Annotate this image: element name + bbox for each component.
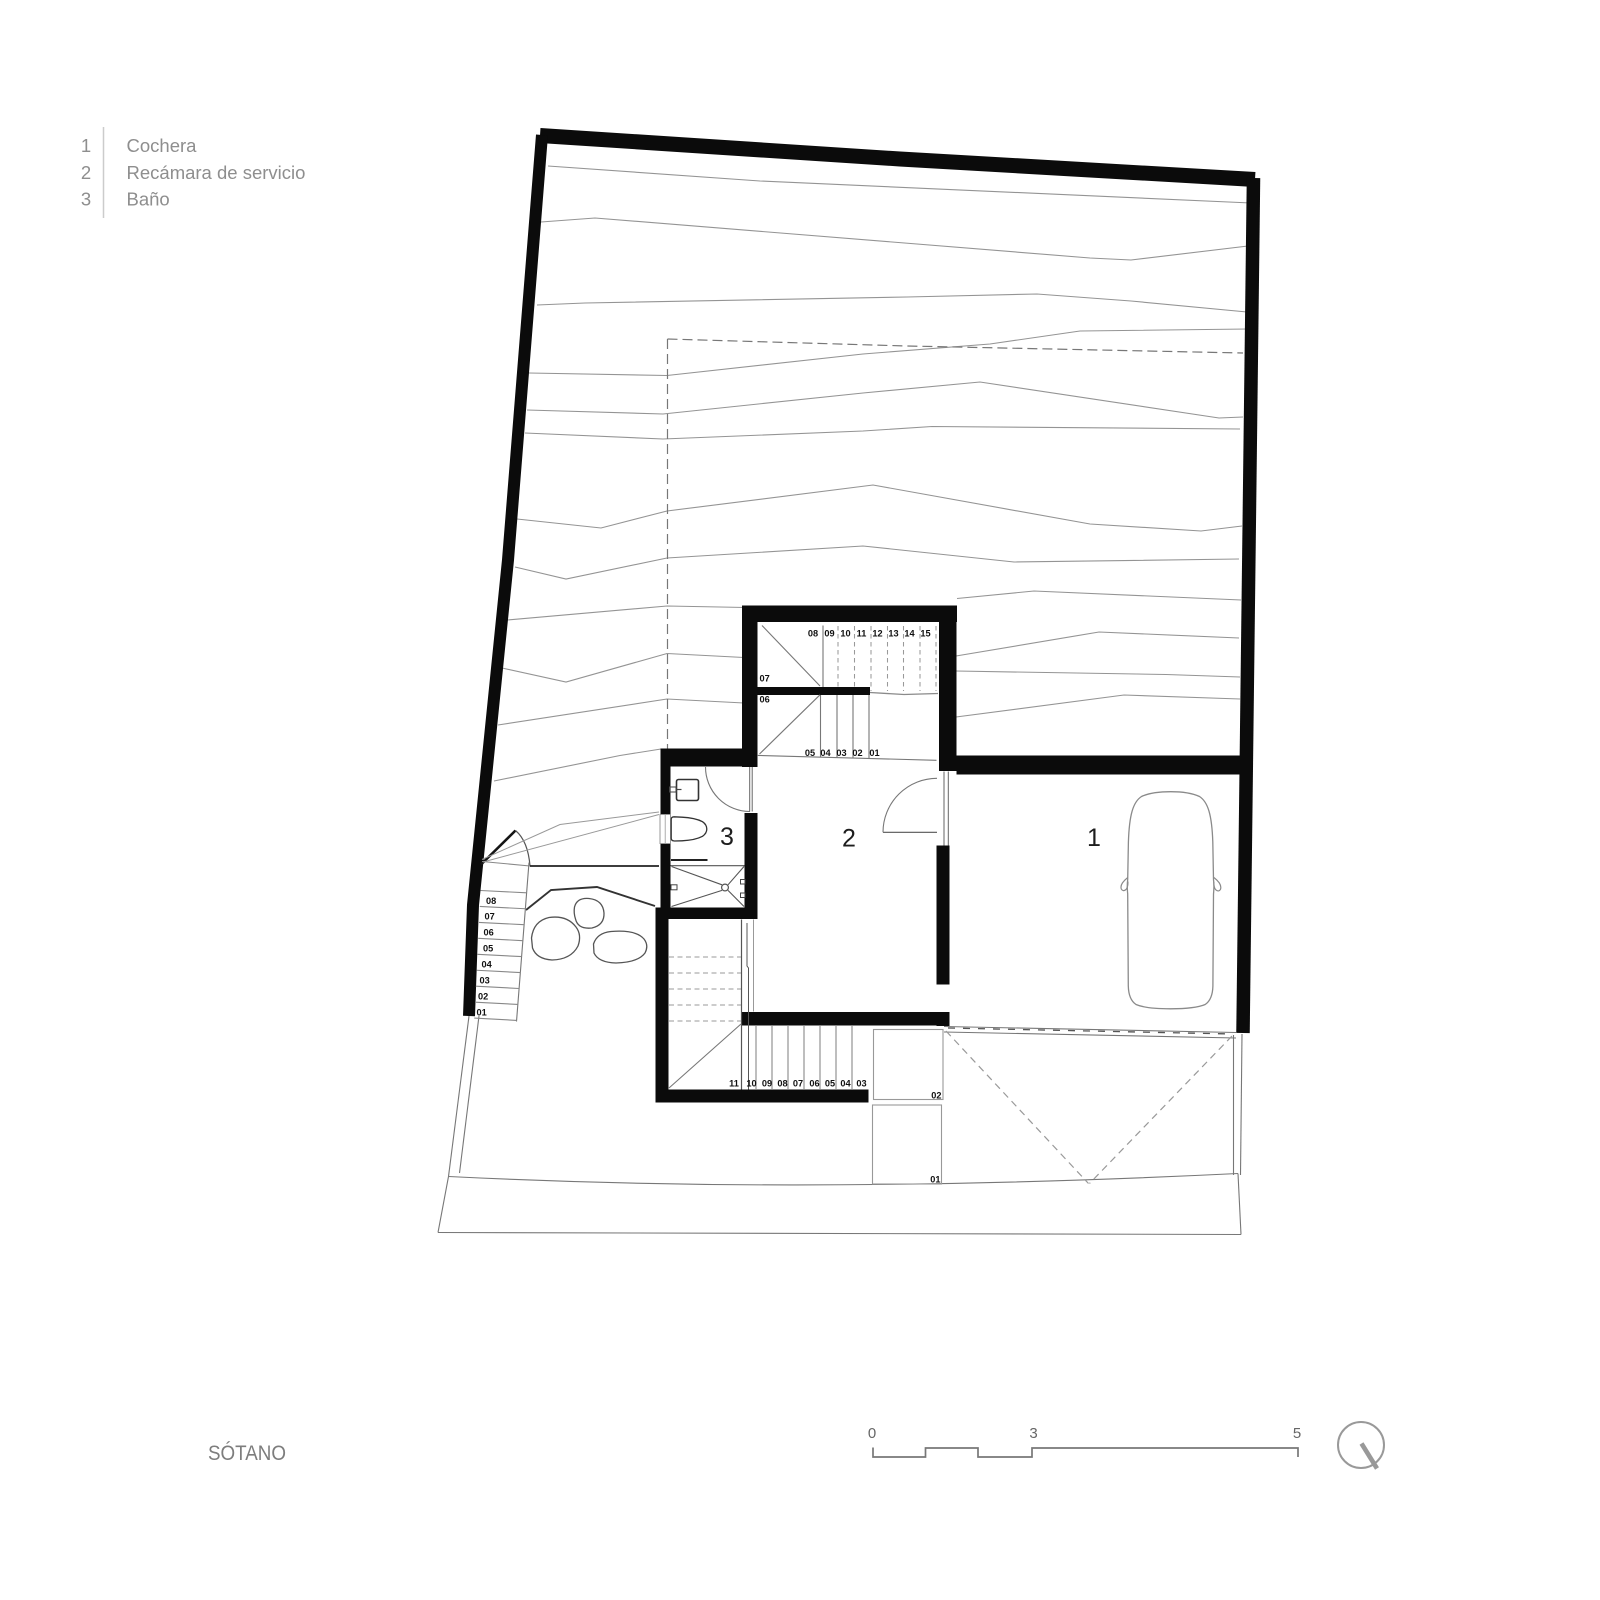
svg-text:11: 11 [857,629,867,639]
svg-text:08: 08 [808,629,818,639]
svg-text:10: 10 [840,629,850,639]
svg-text:2: 2 [842,825,856,853]
svg-text:1: 1 [81,135,91,156]
svg-text:09: 09 [762,1079,772,1089]
svg-text:01: 01 [930,1175,940,1185]
svg-text:04: 04 [482,959,493,969]
svg-text:01: 01 [869,748,879,758]
svg-text:08: 08 [486,896,496,906]
svg-text:Baño: Baño [127,189,170,210]
svg-text:2: 2 [81,162,91,183]
svg-text:06: 06 [760,695,770,705]
svg-text:03: 03 [856,1079,866,1089]
svg-text:03: 03 [836,748,846,758]
svg-text:5: 5 [1293,1425,1301,1442]
svg-text:03: 03 [480,975,490,985]
svg-text:01: 01 [477,1007,487,1017]
svg-text:11: 11 [729,1079,739,1089]
svg-text:02: 02 [478,991,488,1001]
svg-text:06: 06 [809,1079,819,1089]
svg-text:1: 1 [1087,824,1101,852]
svg-text:06: 06 [484,927,494,937]
svg-text:10: 10 [746,1079,756,1089]
svg-text:3: 3 [81,189,91,210]
svg-text:SÓTANO: SÓTANO [208,1442,286,1465]
svg-text:09: 09 [824,629,834,639]
svg-text:05: 05 [825,1079,835,1089]
svg-text:13: 13 [888,629,898,639]
svg-text:05: 05 [805,748,815,758]
svg-text:05: 05 [483,943,493,953]
svg-text:0: 0 [868,1425,876,1442]
svg-text:14: 14 [904,629,915,639]
svg-text:02: 02 [852,748,862,758]
svg-text:04: 04 [820,748,831,758]
svg-text:07: 07 [485,911,495,921]
svg-text:Cochera: Cochera [127,135,198,156]
svg-text:07: 07 [793,1079,803,1089]
svg-text:12: 12 [872,629,882,639]
svg-text:04: 04 [840,1079,851,1089]
svg-text:3: 3 [1029,1425,1037,1442]
svg-text:Recámara de servicio: Recámara de servicio [127,162,306,183]
svg-text:08: 08 [777,1079,787,1089]
svg-text:15: 15 [920,629,930,639]
svg-text:3: 3 [720,823,734,851]
svg-text:07: 07 [760,674,770,684]
svg-text:02: 02 [931,1090,941,1100]
